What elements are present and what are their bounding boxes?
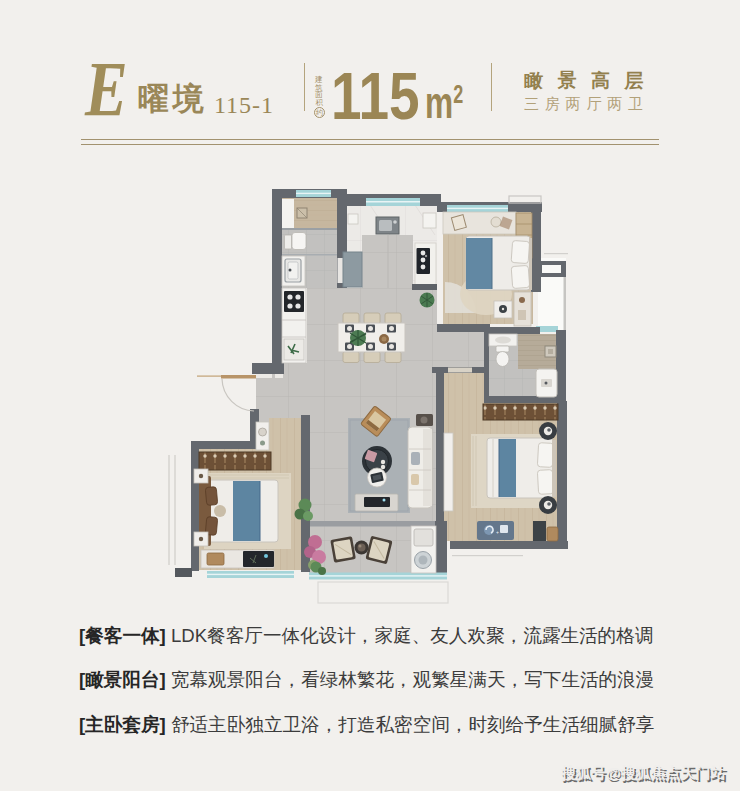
svg-text:+: + [496,529,499,535]
